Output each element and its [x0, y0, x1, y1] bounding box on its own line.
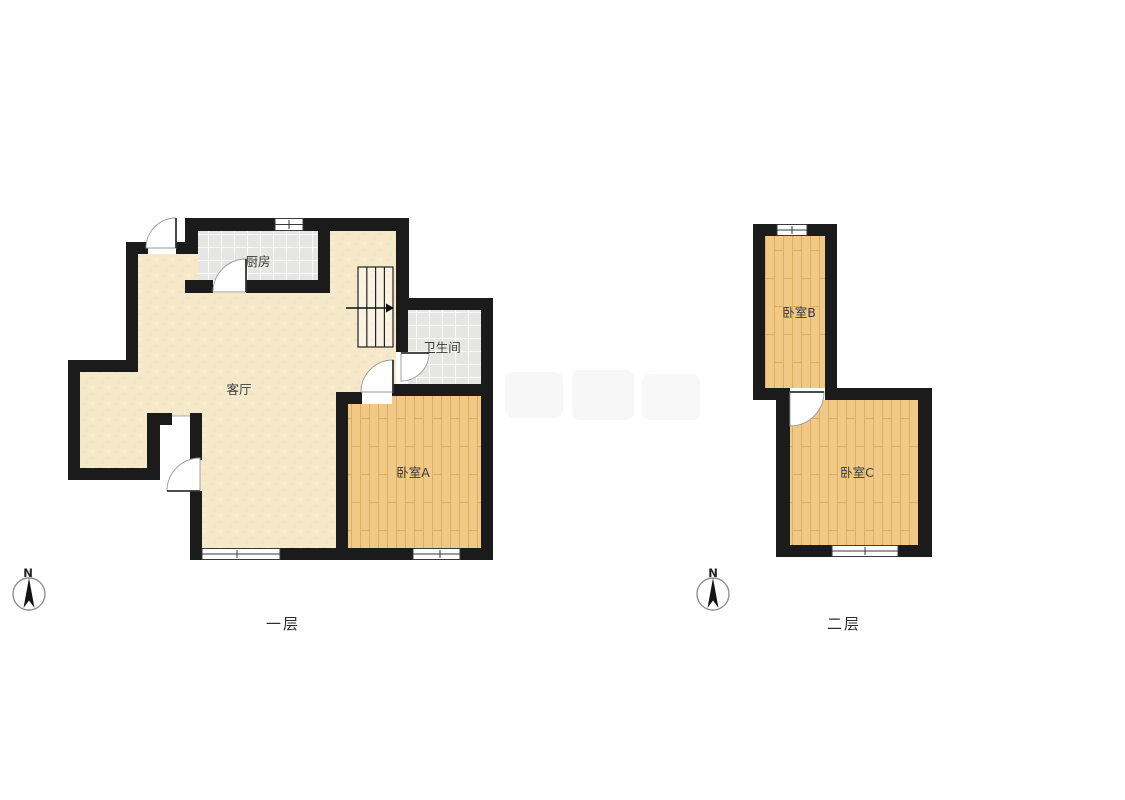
kitchen-label: 厨房 — [245, 254, 270, 269]
bedroom-a-label: 卧室A — [396, 465, 430, 480]
second-floor-label: 二层 — [827, 615, 861, 633]
bedroom-a-door-opening — [362, 392, 392, 404]
first-floor-label: 一层 — [266, 615, 300, 633]
second-floor-plan: 卧室B 卧室C N 二层 — [697, 224, 932, 633]
watermark-smudge — [505, 370, 700, 420]
bedroom-c-window — [832, 546, 898, 557]
bedroom-b-window — [777, 225, 807, 236]
bedroom-c-label: 卧室C — [840, 465, 874, 480]
bathroom-label: 卫生间 — [423, 340, 461, 355]
first-floor-compass: N — [13, 566, 45, 610]
floor-plan-canvas: 厨房 客厅 卫生间 卧室A N 一层 — [0, 0, 1125, 800]
outside-area — [56, 480, 190, 570]
floor-plan-image: 厨房 客厅 卫生间 卧室A N 一层 — [0, 0, 1125, 800]
entrance-door — [146, 218, 176, 248]
kitchen-window — [275, 219, 303, 231]
living-room-floor-nook — [330, 231, 396, 254]
living-room-label: 客厅 — [226, 382, 251, 397]
bedroom-a-window — [413, 549, 460, 560]
first-floor-plan: 厨房 客厅 卫生间 卧室A N 一层 — [13, 218, 493, 633]
bedroom-b-label: 卧室B — [782, 305, 816, 320]
second-floor-compass: N — [697, 566, 729, 610]
living-room-window — [202, 549, 280, 560]
